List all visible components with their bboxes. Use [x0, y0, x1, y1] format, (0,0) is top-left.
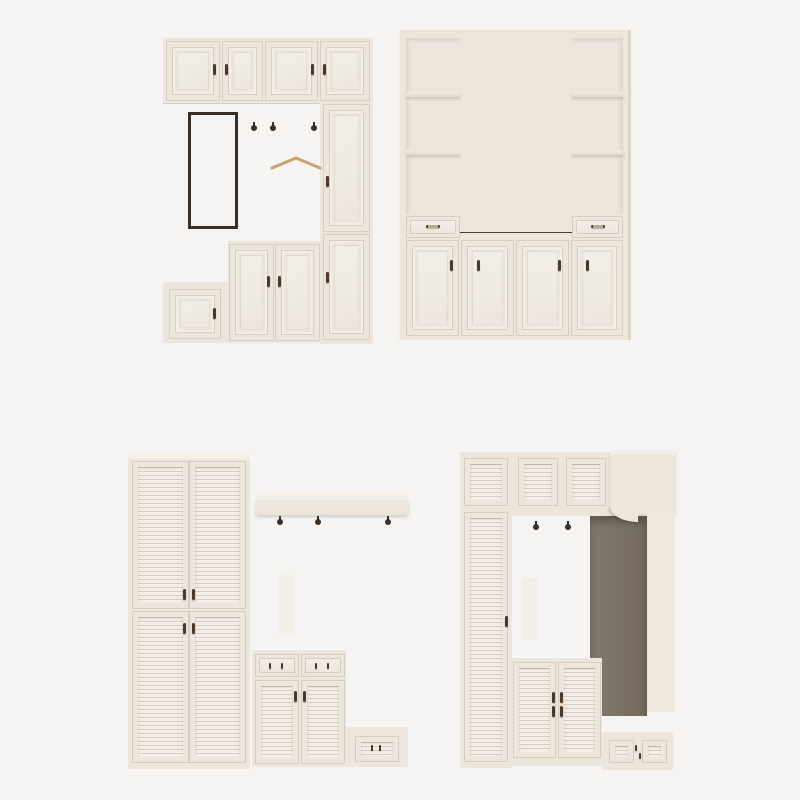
coat-hook [385, 516, 391, 525]
louvered-door [132, 461, 189, 609]
drawer-handle [327, 663, 329, 669]
cabinet-unit-bottom-right [448, 450, 675, 780]
door-handle [225, 64, 228, 75]
louvered-panel [464, 458, 508, 506]
floor-shadow [454, 774, 672, 786]
coat-hook [315, 516, 321, 525]
dark-shoes [269, 232, 284, 239]
louvered-panel [518, 458, 558, 506]
drawer-handle [426, 225, 440, 228]
shelf-board [406, 92, 460, 97]
wardrobe-top-cap [128, 453, 250, 459]
shelf-board [572, 150, 623, 155]
cabinet-door [516, 240, 569, 336]
counter-edge [510, 654, 604, 659]
louvered-door [189, 611, 246, 763]
cabinet-door [571, 240, 623, 336]
plant-pot [299, 480, 313, 492]
louvered-door [464, 512, 508, 762]
door-handle [477, 260, 480, 271]
book [514, 227, 554, 232]
door-handle [213, 308, 216, 319]
door-handle [183, 623, 186, 634]
shelf-board [572, 92, 623, 97]
louvered-door [513, 662, 556, 758]
cabinet-door [222, 41, 263, 101]
drawer-handle [269, 663, 271, 669]
door-handle [183, 589, 186, 600]
cabinet-unit-bottom-left [128, 445, 416, 780]
flower-vase [352, 478, 364, 492]
right-side-panel [647, 514, 675, 712]
louvered-door [558, 662, 601, 758]
door-handle [450, 260, 453, 271]
drawer-handle [591, 225, 605, 228]
dark-dish [440, 142, 453, 148]
door-handle [552, 692, 555, 703]
cabinet-door [461, 240, 514, 336]
plant-pot [281, 479, 296, 492]
drawer [301, 654, 345, 677]
brown-shoulder-bag [370, 555, 406, 591]
plant-pot [415, 180, 441, 207]
floor-shadow [171, 346, 367, 356]
bird-figurine [582, 642, 596, 654]
louvered-panel [566, 458, 606, 506]
louvered-door [189, 461, 246, 609]
row-of-books [410, 118, 444, 148]
louvered-door [301, 680, 345, 764]
picture-frame [418, 60, 442, 90]
dried-bouquet-ornament [340, 499, 362, 533]
louvered-door [132, 611, 189, 763]
wooden-hanger [269, 155, 323, 170]
door-handle [379, 745, 381, 751]
door-handle [326, 176, 329, 187]
louvered-door [255, 680, 299, 764]
door-handle [311, 64, 314, 75]
door-handle [326, 272, 329, 283]
plant-pot [304, 630, 330, 650]
door-handle [552, 706, 555, 717]
door-handle [639, 753, 641, 759]
white-ceramic [602, 132, 614, 148]
door-handle [192, 589, 195, 600]
drawer [255, 654, 299, 677]
coat-shelf-board [256, 492, 408, 500]
door-handle [213, 64, 216, 75]
drawer-handle [315, 663, 317, 669]
mirror-panel [188, 112, 238, 229]
collage-art [522, 578, 538, 640]
cabinet-door [320, 41, 370, 101]
door-handle [323, 64, 326, 75]
coat-hook [270, 122, 276, 131]
coat-hook [277, 516, 283, 525]
cabinet-door [275, 244, 320, 341]
plant-pot [550, 632, 572, 656]
cabinet-door [323, 104, 370, 232]
door-handle [294, 691, 297, 702]
round-vase [581, 170, 608, 200]
soffit-shadow [512, 516, 590, 522]
cabinet-unit-top-left [163, 38, 373, 346]
counter-edge [252, 648, 346, 652]
plant-pot [474, 198, 502, 228]
door-handle [192, 623, 195, 634]
fedora-hat-brim [275, 141, 317, 154]
door-handle [278, 276, 281, 287]
shelf-top-face [610, 450, 675, 455]
door-handle [303, 691, 306, 702]
louvered-panel [609, 740, 634, 763]
coat-hook [565, 521, 571, 530]
cabinet-door [323, 234, 370, 340]
door-handle [635, 745, 637, 751]
coat-hook [311, 122, 317, 131]
succulent-plant [415, 158, 442, 182]
soffit-shadow [188, 104, 320, 110]
floor-shadow [404, 344, 626, 354]
niche-sill [460, 232, 572, 238]
side-panel [448, 456, 460, 768]
plant-pot [264, 480, 278, 492]
louvered-panel [642, 740, 667, 763]
orange-backpack [282, 200, 317, 240]
coat-shelf-fascia [256, 500, 408, 515]
brown-tote-bag [171, 220, 245, 282]
shelf-board [406, 150, 460, 155]
door-handle [560, 706, 563, 717]
door-handle [558, 260, 561, 271]
louvered-door [355, 736, 399, 762]
wall-shelf-box [610, 450, 675, 514]
cabinet-door [406, 240, 459, 336]
door-handle [267, 276, 270, 287]
door-handle [586, 260, 589, 271]
cabinet-door [166, 41, 220, 101]
coat-hook [251, 122, 257, 131]
drawer-handle [281, 663, 283, 669]
orange-crossbody-bag [239, 194, 272, 221]
plinth [254, 767, 407, 773]
picture-frame [591, 59, 616, 90]
coat-hook [533, 521, 539, 530]
cabinet-unit-top-right [398, 30, 631, 346]
bench-cushion [345, 710, 409, 728]
bench-cushion [601, 710, 675, 732]
door-handle [505, 616, 508, 627]
potted-plant-foliage [538, 608, 582, 635]
door-handle [371, 745, 373, 751]
door-handle [560, 692, 563, 703]
floor-shadow [132, 774, 410, 786]
potted-plant-foliage [296, 607, 336, 632]
